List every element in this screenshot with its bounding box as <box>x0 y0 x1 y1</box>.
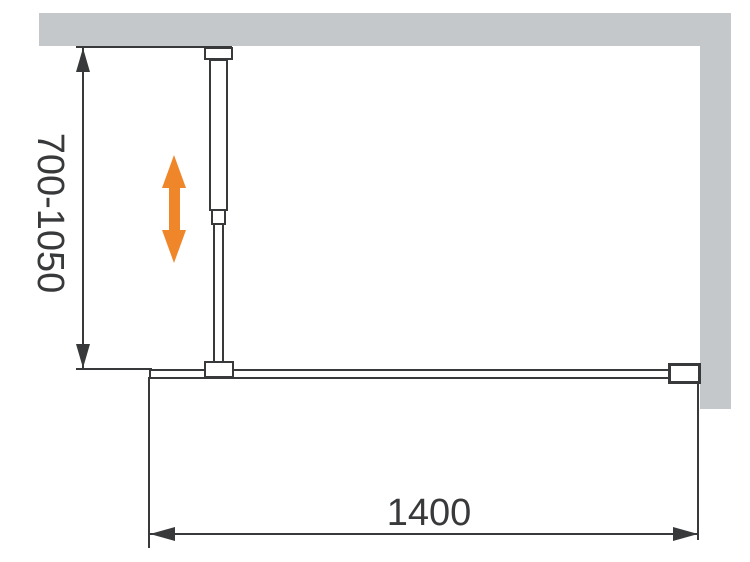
width-arrowhead-right-icon <box>673 527 698 541</box>
height-extension-line-bottom <box>76 368 152 370</box>
height-arrowhead-down-icon <box>76 344 90 368</box>
width-arrowhead-left-icon <box>150 527 175 541</box>
wall-mount-bracket <box>668 363 701 384</box>
adjustability-arrow-head-down <box>162 230 186 263</box>
width-extension-line-left <box>148 377 150 548</box>
adjustability-arrow-shaft <box>169 186 180 232</box>
diagram-canvas: 700-1050 1400 <box>0 0 750 562</box>
height-dimension-line <box>82 48 84 368</box>
height-arrowhead-up-icon <box>76 48 90 72</box>
support-rod-outer-tube <box>209 59 228 211</box>
height-dimension-label: 700-1050 <box>31 133 69 294</box>
telescopic-adjustment-collar <box>211 209 226 225</box>
glass-clamp-bracket <box>204 361 234 378</box>
width-dimension-label: 1400 <box>387 494 472 532</box>
wall-side <box>700 13 731 409</box>
support-rod-inner-tube <box>213 223 224 364</box>
adjustability-arrow-head-up <box>162 155 186 188</box>
wall-top <box>39 13 731 46</box>
ceiling-mount-bracket <box>204 47 233 60</box>
width-extension-line-right <box>697 384 699 540</box>
